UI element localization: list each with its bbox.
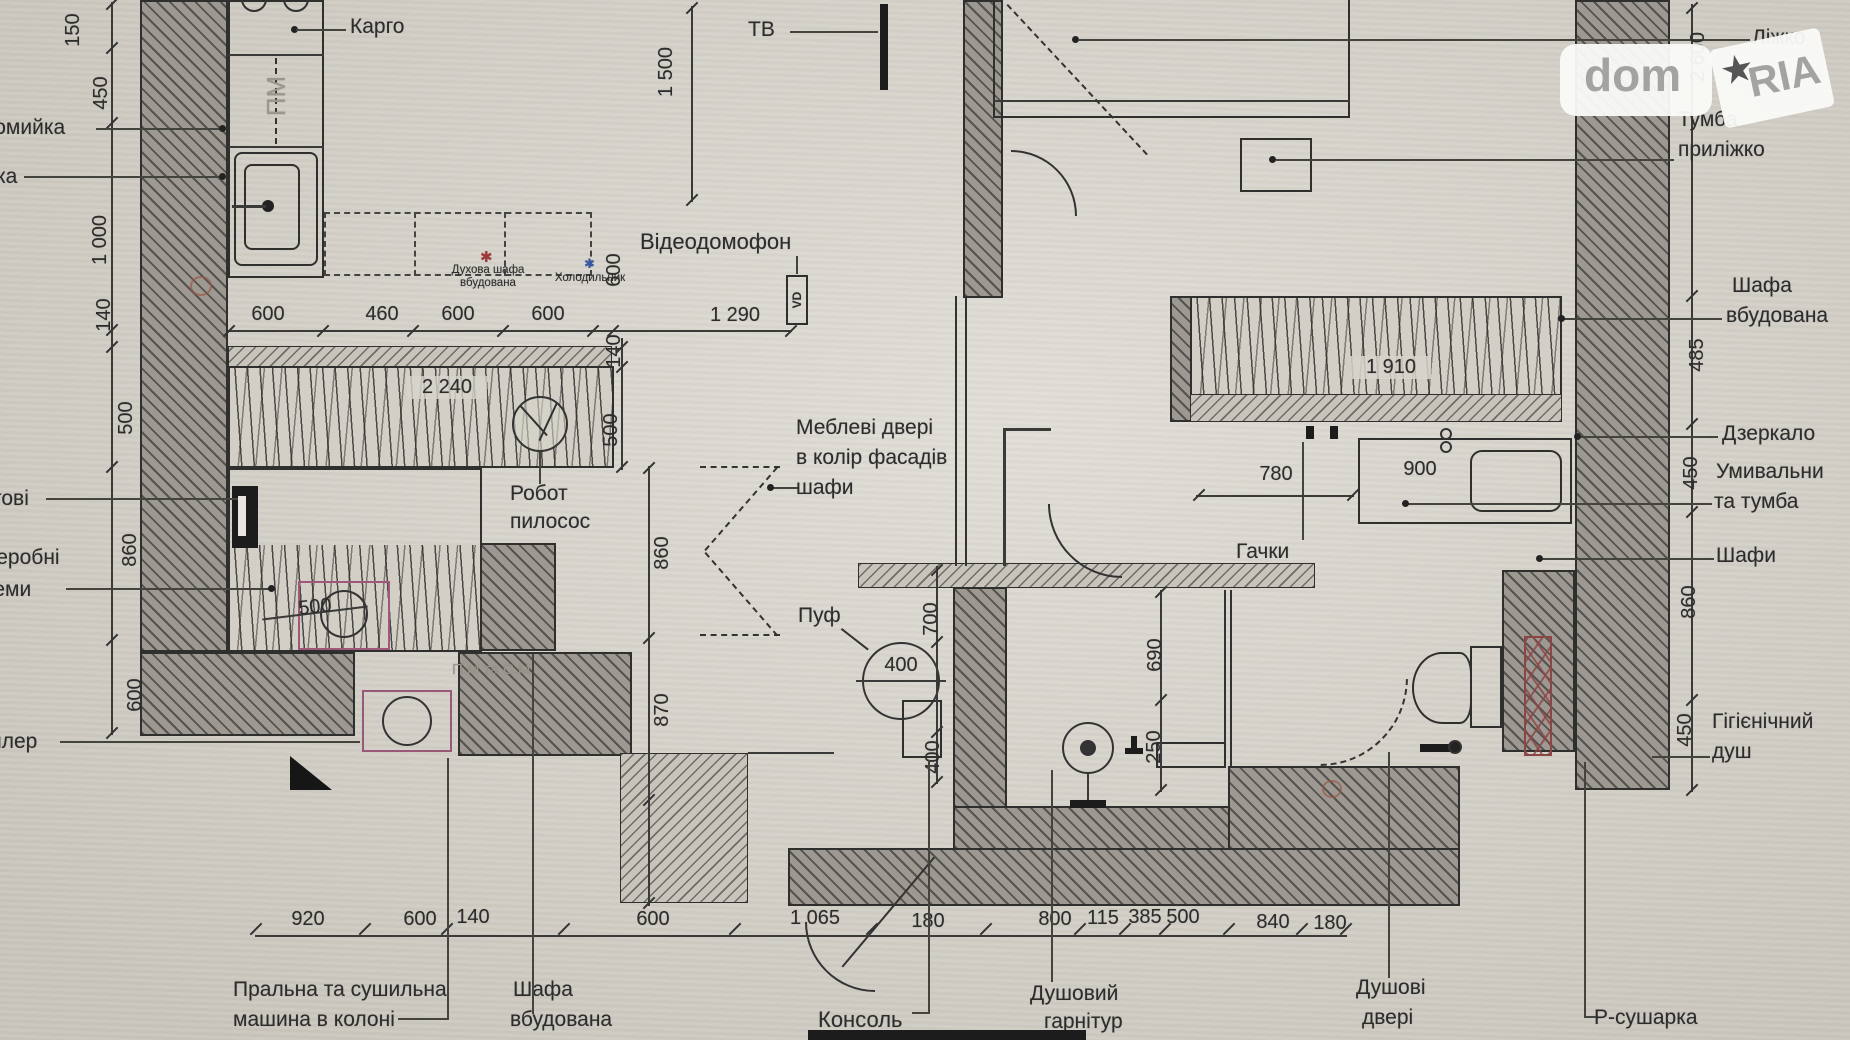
dim-left-450: 450 <box>90 53 112 133</box>
bath-left-line <box>1003 428 1006 566</box>
cut-dishwasher-label: домийка <box>0 116 65 140</box>
leader-dot <box>1402 500 1409 507</box>
cut-tovi-label: тові <box>0 487 29 511</box>
towel-dryer <box>1524 636 1552 756</box>
bed-foot-line <box>993 100 1350 102</box>
dim-b-180b: 180 <box>1300 912 1360 935</box>
dim-left-860: 860 <box>119 510 141 590</box>
dim-left-140: 140 <box>93 275 115 355</box>
pouf-diameter <box>856 680 946 682</box>
tumba-label2: приліжко <box>1678 138 1765 162</box>
leader <box>1584 762 1586 1018</box>
dim-v400: 400 <box>922 717 944 797</box>
mirror-label: Дзеркало <box>1722 422 1815 446</box>
wall-panel-slot <box>238 496 246 536</box>
leader <box>928 760 930 1012</box>
dim-b-600: 600 <box>390 908 450 931</box>
dim-900: 900 <box>1390 458 1450 481</box>
bed-leader <box>1078 39 1750 41</box>
furn-doors-label1: Меблеві двері <box>796 416 933 440</box>
furn-doors-label3: шафи <box>796 476 854 500</box>
partition-corridor <box>955 296 967 566</box>
cut-garderob-label2: теми <box>0 578 31 602</box>
leader <box>1580 436 1718 438</box>
wall-right <box>1575 0 1670 790</box>
toilet-tank <box>1470 646 1502 728</box>
leader <box>1051 770 1053 982</box>
leader <box>96 128 224 130</box>
shower-mixer-icon <box>1070 800 1106 808</box>
leader <box>24 176 224 178</box>
section-triangle <box>290 756 332 790</box>
dim-b-600b: 600 <box>623 908 683 931</box>
leader <box>1408 503 1712 505</box>
leader-dot <box>219 173 226 180</box>
pouf-connector <box>841 628 869 651</box>
dim-r-450: 450 <box>1680 433 1702 513</box>
counter-dash-divider <box>414 212 416 276</box>
leader <box>46 498 238 500</box>
dim-left-150: 150 <box>62 0 84 70</box>
washer-label2: машина в колоні <box>233 1008 395 1032</box>
cut-garderob-label1: деробні <box>0 546 60 570</box>
dim-v600: 600 <box>603 230 625 310</box>
dim-b-140: 140 <box>443 906 503 929</box>
dim-r-860: 860 <box>1678 562 1700 642</box>
dim-r-450b: 450 <box>1674 690 1696 770</box>
hygienic-shower-icon <box>1448 740 1462 754</box>
dim-v690: 690 <box>1144 615 1166 695</box>
furn-door-dash <box>704 467 778 551</box>
leader <box>66 588 272 590</box>
leader <box>532 654 534 1014</box>
vd-label: VD <box>786 260 808 340</box>
washer-label1: Пральна та сушильна <box>233 978 447 1002</box>
dim-1290: 1 290 <box>695 304 775 327</box>
watermark-dom: dom <box>1584 48 1681 102</box>
hall-wardrobe-block <box>620 753 748 903</box>
shafa-right-label2: вбудована <box>1726 304 1828 328</box>
dim-v870: 870 <box>651 670 673 750</box>
tumba-leader <box>1276 159 1674 161</box>
robot-label2: пилосос <box>510 510 590 534</box>
furn-door-dash <box>700 466 780 468</box>
dim-k-600c: 600 <box>518 303 578 326</box>
dim-v140: 140 <box>603 311 625 391</box>
bedroom-door-arc <box>918 123 1105 310</box>
dim-left-1000: 1 000 <box>89 200 111 280</box>
dim-b-1065: 1 065 <box>775 907 855 930</box>
hooks-label: Гачки <box>1236 540 1289 564</box>
dim-b-500: 500 <box>1153 906 1213 929</box>
leader-dot <box>1558 315 1565 322</box>
furn-door-arrow <box>772 487 798 489</box>
dim-v500: 500 <box>600 390 622 470</box>
wardrobe-jamb <box>1170 296 1192 422</box>
dim-line-c2 <box>648 466 650 906</box>
furn-doors-label2: в колір фасадів <box>796 446 947 470</box>
wardrobe-right-top <box>1190 296 1562 396</box>
leader-dot <box>1574 433 1581 440</box>
red-mark <box>1322 780 1342 798</box>
oven-label: Духова шафа <box>442 264 534 276</box>
shower-bar-icon <box>1131 736 1137 750</box>
wall-kitchen-band <box>228 346 612 367</box>
red-mark <box>190 276 212 296</box>
sink-label1: Умивальни <box>1716 460 1824 484</box>
bath-entry-wall-line <box>1003 428 1051 431</box>
small-wardrobe-block <box>480 543 556 651</box>
dim-b-840: 840 <box>1243 911 1303 934</box>
dim-k-600: 600 <box>238 303 298 326</box>
leader <box>1584 1016 1596 1018</box>
scan-edge-bar <box>808 1030 1086 1040</box>
robot-leader <box>539 452 541 484</box>
leader <box>912 1012 930 1014</box>
hygienic-label2: душ <box>1712 740 1752 764</box>
wall-bath-bottom-band <box>1228 766 1460 850</box>
dim-k-600b: 600 <box>428 303 488 326</box>
furn-door-arrow-dot <box>767 484 774 491</box>
shower-doors-label1: Душові <box>1356 976 1426 1000</box>
shafy-label: Шафи <box>1716 544 1776 568</box>
faucet-icon <box>1440 428 1452 440</box>
leader <box>1652 756 1710 758</box>
cabinet-divider <box>228 146 324 148</box>
dishwasher-pm-label: ПМ <box>265 56 287 136</box>
dim-2240: 2 240 <box>407 376 487 399</box>
dim-b-920: 920 <box>278 908 338 931</box>
dim-v250: 250 <box>1143 707 1165 787</box>
bedside-table <box>1240 138 1312 192</box>
shafa-bottom-label1: Шафа <box>513 978 573 1002</box>
furn-door-dash <box>700 634 780 636</box>
leader <box>1388 752 1390 978</box>
tv-label: ТВ <box>748 18 775 42</box>
dim-line-kitchen <box>228 330 792 332</box>
wall-shower-left <box>953 587 1007 822</box>
robot-label1: Робот <box>510 482 568 506</box>
dim-line-bottom <box>255 935 1347 937</box>
shafa-bottom-label2: вбудована <box>510 1008 612 1032</box>
faucet-icon <box>1440 441 1452 453</box>
dim-line-1500 <box>691 6 693 202</box>
boiler-icon <box>382 696 432 746</box>
dim-left-500: 500 <box>115 378 137 458</box>
floor-plan-scan: ПМ ✱ ✱ Духова шафа вбудована Холодильник… <box>0 0 1850 1040</box>
leader-dot <box>268 585 275 592</box>
tv-leader <box>790 31 878 33</box>
wardrobe-right-shelf <box>1190 394 1562 422</box>
dim-v700: 700 <box>920 579 942 659</box>
shower-bench <box>1156 742 1226 768</box>
console-label: Консоль <box>818 1008 903 1032</box>
hook-icon <box>1306 426 1314 439</box>
shafa-right-label1: Шафа <box>1732 274 1792 298</box>
sink-label2: та тумба <box>1714 490 1798 514</box>
toilet-bowl <box>1412 652 1472 724</box>
pm-sm-label: П.М та С.М. <box>452 658 535 682</box>
dim-1500: 1 500 <box>655 32 677 112</box>
tumba-leader-dot <box>1269 156 1276 163</box>
shower-head-center <box>1080 740 1096 756</box>
leader <box>447 758 449 1020</box>
wall-left <box>140 0 228 652</box>
hall-bottom-line <box>748 752 834 754</box>
hygienic-label1: Гігієнічний <box>1712 710 1813 734</box>
cut-boiler-label: йлер <box>0 730 37 754</box>
sink-spout <box>232 205 266 208</box>
leader-dot <box>1536 555 1543 562</box>
pouf-label: Пуф <box>798 604 841 628</box>
shower-set-label1: Душовий <box>1030 982 1118 1006</box>
videophone-label: Відеодомофон <box>640 230 791 254</box>
kargo-leader <box>296 29 346 31</box>
hooks-leader <box>1302 442 1304 540</box>
leader <box>1542 558 1714 560</box>
hook-icon <box>1330 426 1338 439</box>
dim-780: 780 <box>1246 463 1306 486</box>
dim-v860: 860 <box>651 513 673 593</box>
furn-door-dash <box>704 552 778 636</box>
dim-r-485: 485 <box>1686 315 1708 395</box>
tv-icon <box>880 4 888 90</box>
dim-line-780 <box>1196 495 1354 497</box>
shower-doors-label2: двері <box>1362 1006 1413 1030</box>
kargo-label: Карго <box>350 15 404 39</box>
leader-dot <box>219 125 226 132</box>
leader <box>1564 318 1722 320</box>
cut-sink-label: ка <box>0 165 17 189</box>
dim-1910: 1 910 <box>1351 356 1431 379</box>
wall-shower-bottom <box>953 806 1230 850</box>
dim-left-600: 600 <box>124 655 146 735</box>
wall-bottom-left-a <box>140 652 355 736</box>
leader <box>398 1018 448 1020</box>
dim-k-460: 460 <box>352 303 412 326</box>
oven-label2: вбудована <box>442 277 534 289</box>
dryer-label: Р-сушарка <box>1594 1006 1698 1030</box>
leader <box>60 741 360 743</box>
